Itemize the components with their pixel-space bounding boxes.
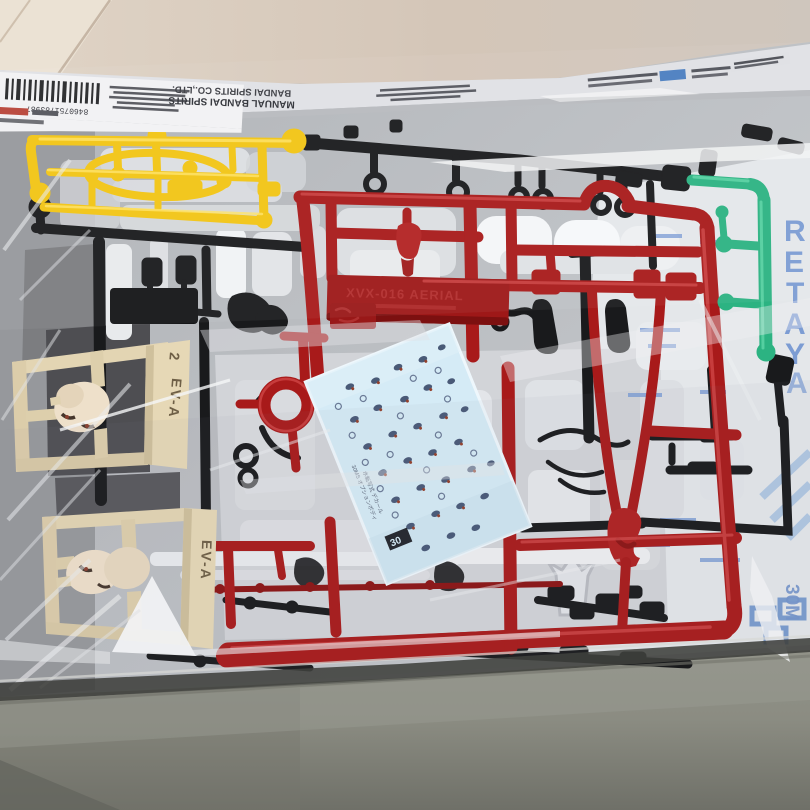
svg-text:2: 2 — [166, 352, 183, 361]
